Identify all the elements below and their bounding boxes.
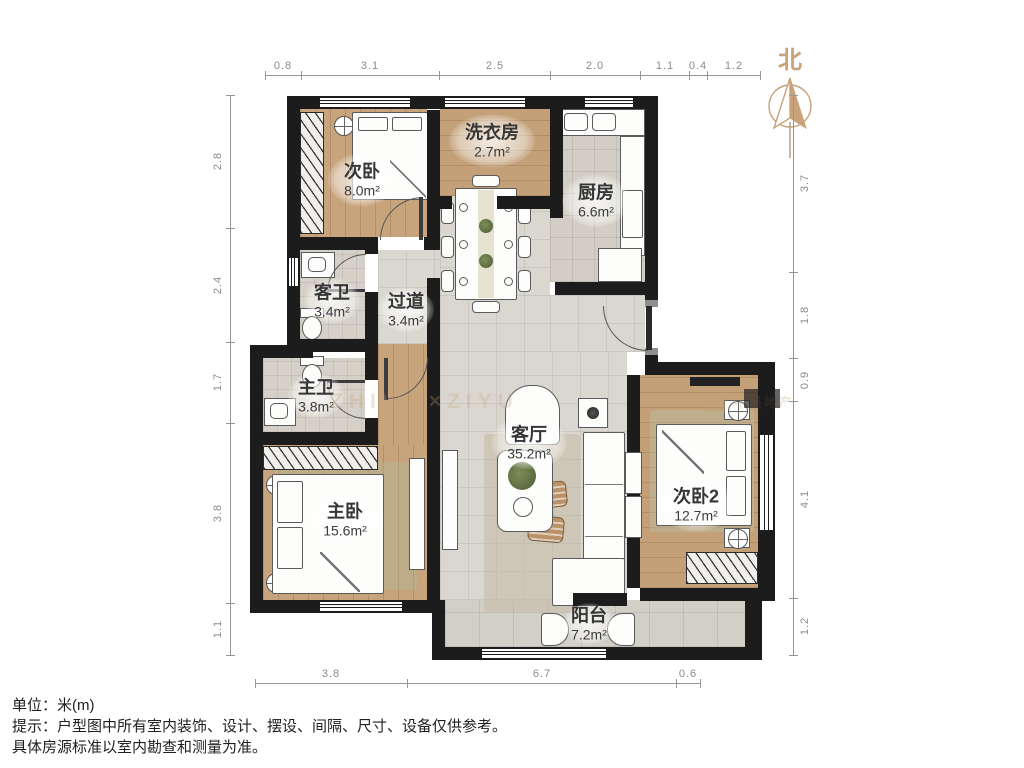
- dim-label: 2.4: [212, 276, 224, 294]
- tick: [407, 679, 408, 688]
- north-compass-icon: [764, 72, 816, 158]
- tick: [707, 71, 708, 80]
- dim-label: 1.2: [799, 617, 811, 635]
- dim-line-bottom: [255, 683, 700, 684]
- tick: [226, 603, 235, 604]
- plate-icon: [504, 240, 513, 249]
- tick: [439, 71, 440, 80]
- kitchen-sink-icon: [564, 113, 588, 131]
- room-name: 阳台: [571, 605, 607, 626]
- tick: [226, 655, 235, 656]
- tick: [676, 679, 677, 688]
- sofa-cushion-divider: [585, 536, 623, 537]
- room-area: 3.4m²: [388, 312, 424, 329]
- wall-bedroom1-right: [427, 110, 440, 237]
- room-area: 35.2m²: [507, 445, 551, 462]
- dim-line-left: [230, 95, 231, 655]
- bedroom2-door-panel: [625, 452, 642, 494]
- dim-label: 3.8: [212, 504, 224, 522]
- wall-left-lower: [250, 345, 263, 613]
- dim-label: 0.6: [679, 668, 697, 680]
- floorplan-page: { "north": {"label": "北"}, "rooms": [ {"…: [0, 0, 1024, 768]
- master-tv-cabinet: [409, 458, 425, 570]
- dining-chair: [518, 236, 531, 258]
- tick: [226, 95, 235, 96]
- wall-masterbath-bottom: [250, 432, 378, 445]
- tick: [760, 71, 761, 80]
- entry-door-leaf: [646, 306, 652, 350]
- bedroom2-wardrobe: [686, 552, 758, 584]
- door-opening: [365, 254, 378, 292]
- room-name: 过道: [388, 291, 424, 312]
- tick: [789, 95, 798, 96]
- footer-tip-line1: 提示：户型图中所有室内装饰、设计、摆设、间隔、尺寸、设备仅供参考。: [12, 715, 507, 736]
- dim-label: 1.2: [725, 60, 743, 72]
- room-label-kitchen: 厨房 6.6m²: [562, 174, 630, 227]
- kitchen-fridge: [598, 248, 642, 282]
- dim-line-top: [265, 75, 760, 76]
- room-area: 8.0m²: [344, 182, 380, 199]
- room-area: 15.6m²: [323, 522, 367, 539]
- dining-chair: [472, 301, 500, 313]
- wall-balcony-right: [745, 593, 762, 660]
- table-plant-icon: [479, 254, 493, 268]
- footer-unit: 单位：米(m): [12, 694, 95, 715]
- dim-label: 0.8: [274, 60, 292, 72]
- bedroom2-blanket-fold: [662, 430, 704, 474]
- dining-chair: [441, 236, 454, 258]
- window-guest-bath: [287, 258, 300, 286]
- tick: [789, 655, 798, 656]
- kitchen-sink-icon: [592, 113, 616, 131]
- dim-label: 0.9: [799, 371, 811, 389]
- tick: [550, 71, 551, 80]
- master-bed-pillow: [277, 527, 303, 569]
- plate-icon: [504, 277, 513, 286]
- dim-line-right: [793, 95, 794, 655]
- dim-label: 2.8: [212, 152, 224, 170]
- dim-label: 4.1: [799, 490, 811, 508]
- room-name: 主卧: [327, 501, 363, 522]
- master-bed-pillow: [277, 481, 303, 523]
- side-table-flower-icon: [587, 407, 599, 419]
- dim-label: 6.7: [533, 668, 551, 680]
- dim-label: 1.1: [212, 620, 224, 638]
- plate-icon: [459, 203, 468, 212]
- watermark-logo-icon: [702, 386, 732, 412]
- room-label-guest-bath: 客卫 3.4m²: [304, 278, 360, 323]
- ceiling-light-icon: [728, 529, 748, 549]
- bedroom1-pillow: [358, 117, 388, 131]
- room-name: 次卧: [344, 161, 380, 182]
- tick: [689, 71, 690, 80]
- bedroom2-pillow: [726, 431, 746, 471]
- window-kitchen: [585, 96, 633, 109]
- dim-label: 3.1: [361, 60, 379, 72]
- plate-icon: [459, 240, 468, 249]
- window-balcony: [482, 647, 606, 660]
- room-label-master-bedroom: 主卧 15.6m²: [307, 493, 383, 546]
- wall-bath-divider: [300, 339, 378, 352]
- bedroom1-pillow: [392, 117, 422, 131]
- tick: [789, 358, 798, 359]
- sink-basin-icon: [308, 257, 326, 272]
- tray-icon: [513, 497, 533, 517]
- window-laundry: [445, 96, 525, 109]
- sofa-cushion-divider: [585, 484, 623, 485]
- dim-label: 1.1: [656, 60, 674, 72]
- bedroom1-wardrobe: [300, 112, 324, 234]
- bedroom2-tv: [690, 377, 740, 386]
- living-tv-cabinet: [442, 450, 458, 550]
- dim-label: 0.4: [689, 60, 707, 72]
- room-area: 2.7m²: [474, 143, 510, 160]
- sink-basin-icon: [270, 403, 288, 419]
- room-name: 厨房: [578, 182, 614, 203]
- room-area: 7.2m²: [571, 626, 607, 643]
- room-label-hallway: 过道 3.4m²: [378, 287, 434, 332]
- north-label: 北: [778, 40, 802, 75]
- room-label-bedroom2: 次卧2 12.7m²: [657, 478, 735, 531]
- room-area: 6.6m²: [578, 203, 614, 220]
- tick: [226, 423, 235, 424]
- room-name: 次卧2: [673, 486, 719, 507]
- master-wardrobe: [263, 446, 378, 470]
- dim-label: 2.5: [486, 60, 504, 72]
- tick: [640, 71, 641, 80]
- wall-left-upper: [287, 96, 300, 352]
- room-name: 洗衣房: [465, 122, 519, 143]
- wall-kitchen-bottom: [555, 282, 658, 295]
- room-label-living-room: 客厅 35.2m²: [491, 416, 567, 469]
- dining-chair: [472, 175, 500, 187]
- dining-chair: [518, 270, 531, 292]
- watermark-text: ZHIWU×ZIYU: [330, 390, 519, 414]
- window-master-bedroom: [320, 600, 402, 613]
- ceiling-light-icon: [334, 116, 354, 136]
- dining-chair: [441, 270, 454, 292]
- dim-label: 1.7: [212, 373, 224, 391]
- room-area: 3.8m²: [298, 398, 334, 415]
- tick: [265, 71, 266, 80]
- door-leaf: [419, 197, 423, 240]
- room-name: 客厅: [511, 424, 547, 445]
- tick: [700, 679, 701, 688]
- wall-bedroom2-top: [645, 362, 775, 375]
- table-plant-icon: [479, 219, 493, 233]
- tick: [226, 342, 235, 343]
- dim-label: 1.8: [799, 306, 811, 324]
- tick: [301, 71, 302, 80]
- tick: [789, 401, 798, 402]
- master-blanket-fold: [320, 552, 360, 592]
- dim-label: 3.7: [799, 174, 811, 192]
- plate-icon: [459, 277, 468, 286]
- dim-label: 3.8: [322, 668, 340, 680]
- wall-right-entry-stub: [645, 354, 658, 375]
- room-name: 客卫: [314, 282, 350, 303]
- room-name: 主卫: [298, 377, 334, 398]
- tick: [255, 679, 256, 688]
- room-label-bedroom1: 次卧 8.0m²: [328, 153, 396, 206]
- tick: [789, 598, 798, 599]
- wall-laundry-stub: [427, 196, 452, 209]
- wall-bedroom2-bottom: [640, 588, 762, 601]
- bedroom2-door-panel: [625, 496, 642, 538]
- watermark-badge: [744, 389, 780, 408]
- window-bedroom2: [758, 435, 775, 530]
- tick: [789, 272, 798, 273]
- dining-table-runner: [478, 190, 494, 298]
- wall-laundry-stub: [497, 196, 550, 209]
- room-label-laundry: 洗衣房 2.7m²: [449, 114, 535, 167]
- footer-tip-line2: 具体房源标准以室内勘查和测量为准。: [12, 736, 267, 757]
- dim-label: 2.0: [586, 60, 604, 72]
- tick: [226, 228, 235, 229]
- window-bedroom1: [320, 96, 410, 109]
- wall-right-upper: [645, 96, 658, 306]
- room-area: 3.4m²: [314, 303, 350, 320]
- room-area: 12.7m²: [674, 507, 718, 524]
